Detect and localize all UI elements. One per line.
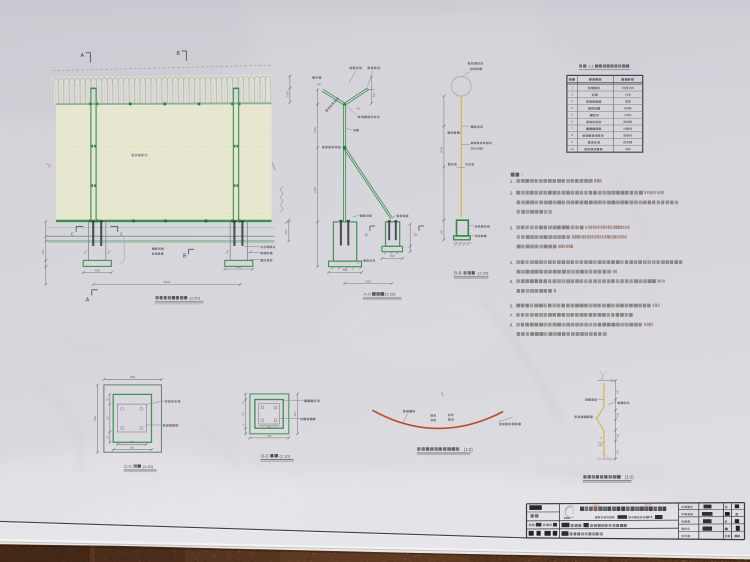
svg-text:1000: 1000 — [285, 91, 289, 97]
svg-text:(1:2): (1:2) — [625, 475, 634, 480]
svg-text:A-A: A-A — [364, 292, 371, 297]
svg-text:7.: 7. — [510, 313, 514, 318]
svg-text:4.: 4. — [510, 260, 514, 265]
svg-text:8.: 8. — [510, 323, 514, 328]
svg-text:700: 700 — [93, 416, 97, 421]
svg-text:D: D — [365, 232, 368, 237]
svg-text:250: 250 — [617, 433, 620, 438]
svg-text:550: 550 — [343, 268, 348, 272]
svg-text:1.: 1. — [510, 179, 514, 184]
svg-text:C: C — [71, 231, 74, 236]
svg-text:400: 400 — [267, 434, 272, 438]
svg-text:2.: 2. — [510, 191, 514, 196]
svg-text:500: 500 — [236, 265, 241, 269]
svg-text:B-B: B-B — [454, 271, 461, 276]
svg-text:C: C — [120, 231, 123, 236]
svg-text:400: 400 — [130, 440, 135, 444]
svg-text:400: 400 — [293, 411, 297, 416]
svg-text:250: 250 — [617, 412, 620, 417]
svg-text:45°: 45° — [317, 83, 322, 87]
svg-text:400: 400 — [95, 269, 100, 273]
svg-text:6.: 6. — [510, 303, 514, 308]
svg-text:45°: 45° — [598, 443, 602, 447]
svg-text:1500: 1500 — [365, 279, 372, 283]
svg-text:(1:2): (1:2) — [464, 447, 473, 452]
svg-text:600: 600 — [372, 92, 376, 97]
svg-text:D: D — [414, 232, 417, 237]
svg-text:1-1: 1-1 — [589, 64, 594, 68]
svg-text:350: 350 — [390, 254, 395, 258]
svg-text:A: A — [81, 53, 85, 59]
svg-text:3.: 3. — [510, 225, 514, 230]
svg-text:250: 250 — [617, 389, 620, 394]
svg-text:10: 10 — [571, 147, 575, 151]
svg-text:D-D: D-D — [261, 454, 269, 459]
svg-text:ENG: ENG — [564, 516, 571, 520]
svg-text:B: B — [176, 51, 180, 57]
svg-text:300: 300 — [284, 229, 288, 234]
svg-text:5000: 5000 — [164, 280, 171, 284]
svg-text:2500: 2500 — [313, 127, 317, 133]
svg-text:5.: 5. — [510, 279, 514, 284]
svg-text:1800: 1800 — [313, 187, 317, 193]
svg-text:(1:10): (1:10) — [143, 464, 154, 469]
svg-text:250: 250 — [617, 449, 620, 454]
svg-text:C-C: C-C — [124, 464, 132, 469]
svg-text:A: A — [86, 297, 90, 303]
svg-text:500: 500 — [41, 249, 45, 254]
svg-text:600: 600 — [130, 375, 135, 379]
svg-text:(1:20): (1:20) — [385, 292, 396, 297]
svg-text:∠: ∠ — [600, 436, 603, 440]
svg-text:2500: 2500 — [439, 147, 443, 153]
svg-text:500: 500 — [440, 229, 443, 234]
svg-text:(1:10): (1:10) — [280, 454, 291, 459]
svg-text:(1:20): (1:20) — [478, 271, 489, 276]
svg-text::: : — [522, 172, 523, 178]
svg-text:500: 500 — [130, 446, 135, 450]
svg-text:(1:20): (1:20) — [190, 295, 201, 300]
svg-text:45°: 45° — [356, 107, 361, 111]
